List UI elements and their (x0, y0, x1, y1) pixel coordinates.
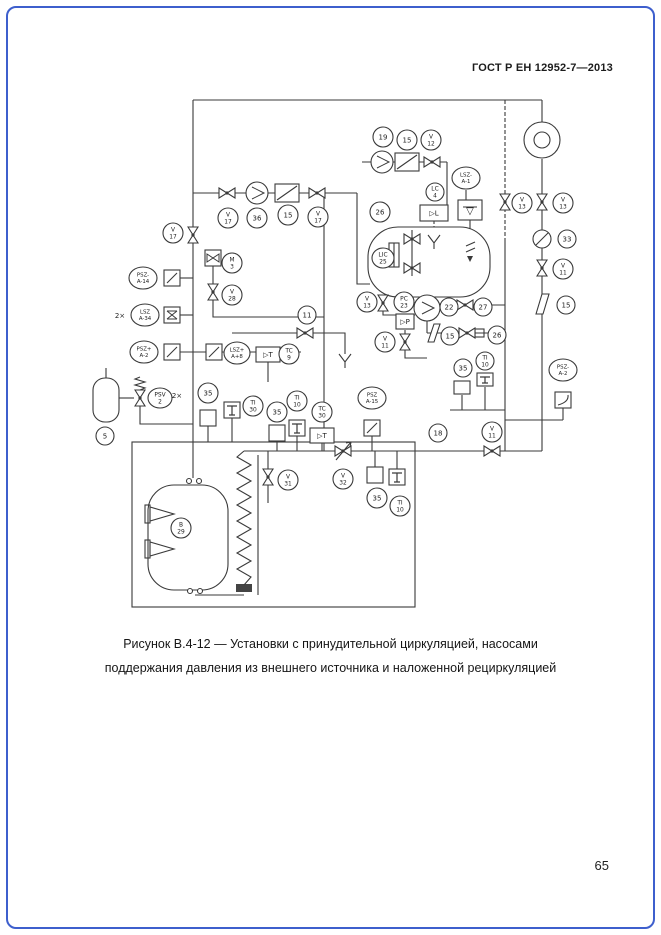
instrument-box: ▷P (396, 314, 414, 329)
pipe-segment (375, 451, 397, 469)
instrument-box (164, 344, 180, 360)
valve-symbol (537, 194, 547, 210)
svg-text:▷T: ▷T (317, 432, 327, 440)
drum-nozzle (187, 479, 192, 484)
instrument-box (389, 469, 405, 485)
instrument-box (200, 410, 216, 426)
instrument-bubble: 5 (96, 427, 114, 445)
pump-symbol (414, 295, 440, 321)
piping-diagram: ▷L▽▷P▷T▷T V17V173615V17M3V28PSZ-A-14LSZA… (0, 0, 661, 935)
check-valve-symbol (533, 230, 551, 248)
valve-symbol (484, 446, 500, 456)
instrument-tag: 33 (563, 236, 572, 244)
instrument-tag: LSZ+A+8 (230, 348, 245, 360)
instrument-bubble: PSZ-A-2 (549, 359, 577, 381)
instrument-bubble: LSZ+A+8 (224, 342, 250, 364)
instrument-bubble: 36 (247, 208, 267, 228)
instrument-bubble: 15 (557, 296, 575, 314)
instrument-bubble: M3 (222, 253, 242, 273)
instrument-bubble: V12 (421, 130, 441, 150)
instrument-tag: 15 (562, 302, 571, 310)
instrument-bubble: PC23 (394, 292, 414, 312)
valve-symbol (208, 284, 218, 300)
pump-symbol (246, 182, 268, 204)
page-number: 65 (595, 858, 609, 873)
valve-symbol (263, 469, 273, 485)
instrument-bubble: 11 (298, 306, 316, 324)
instrument-box (164, 307, 180, 323)
instrument-bubble: PSZA-15 (358, 387, 386, 409)
instrument-bubble: PSZ-A-14 (129, 267, 157, 289)
instrument-box: ▷L (420, 205, 448, 221)
instrument-tag: 26 (376, 209, 385, 217)
instrument-tag: PC23 (400, 297, 408, 310)
svg-text:▽: ▽ (466, 206, 474, 217)
instrument-bubble: 15 (397, 130, 417, 150)
instrument-bubble: 26 (370, 202, 390, 222)
instrument-box (269, 425, 285, 441)
drum-nozzle (197, 479, 202, 484)
instrument-bubble: 33 (558, 230, 576, 248)
instrument-box (454, 381, 470, 394)
valve-symbol (537, 260, 547, 276)
valve-symbol (457, 300, 473, 310)
instrument-bubble: V28 (222, 285, 242, 305)
coil-heater-block (236, 584, 252, 592)
instrument-bubble: TC9 (279, 344, 299, 364)
instrument-box (205, 250, 221, 266)
instrument-tag: 15 (403, 137, 412, 145)
valve-symbol (297, 328, 313, 338)
instrument-bubble: 35 (198, 383, 218, 403)
superheater-coil (237, 451, 251, 585)
drain-funnel-icon (339, 354, 351, 368)
instrument-tag: 18 (434, 430, 443, 438)
figure-caption-line2: поддержания давления из внешнего источни… (0, 656, 661, 680)
instrument-tag: 35 (204, 390, 213, 398)
annotation-text: 2× (172, 392, 182, 400)
instrument-tag: 35 (373, 495, 382, 503)
instrument-tag: 15 (446, 333, 455, 341)
instrument-bubble: TI10 (390, 496, 410, 516)
instrument-bubble: 35 (267, 402, 287, 422)
instrument-bubble: 35 (367, 488, 387, 508)
instrument-bubble: TI10 (476, 352, 494, 370)
instrument-tag: 35 (273, 409, 282, 417)
drum-nozzle (188, 589, 193, 594)
valve-symbol (400, 334, 410, 350)
instrument-bubble: 26 (488, 326, 506, 344)
stack-symbol-inner (534, 132, 550, 148)
instrument-bubble: V13 (512, 193, 532, 213)
valve-symbol (500, 194, 510, 210)
instrument-tag: 27 (479, 304, 488, 312)
figure-caption-line1: Рисунок В.4-12 — Установки с принудитель… (0, 632, 661, 656)
instrument-bubble: V11 (482, 422, 502, 442)
document-page: ГОСТ Р ЕН 12952-7—2013 (0, 0, 661, 935)
instrument-tag: LSZ-A-1 (460, 173, 472, 185)
valve-symbol (378, 295, 388, 311)
svg-text:▷P: ▷P (400, 318, 410, 326)
instrument-bubble: V31 (278, 470, 298, 490)
instrument-box: ▽ (458, 200, 482, 220)
instrument-bubble: B29 (171, 518, 191, 538)
instrument-tag: M3 (229, 258, 234, 271)
instrument-box (555, 392, 571, 408)
instrument-bubble: PSZ+A-2 (130, 341, 158, 363)
instrument-box (364, 420, 380, 436)
annotation-text: 2× (115, 312, 125, 320)
instrument-bubble: 15 (441, 327, 459, 345)
pipe-segment (505, 408, 563, 420)
valve-symbol (188, 227, 198, 243)
instrument-bubble: 27 (474, 298, 492, 316)
instrument-bubble: PSV2 (148, 388, 172, 408)
instrument-bubble: TC30 (312, 402, 332, 422)
instrument-bubble: TI30 (243, 396, 263, 416)
instrument-tag: 36 (253, 215, 262, 223)
valve-symbol (219, 188, 235, 198)
instrument-tag: LSZA-34 (139, 310, 152, 322)
instrument-box (164, 270, 180, 286)
instrument-bubble: TI10 (287, 391, 307, 411)
instrument-box (206, 344, 222, 360)
instrument-tag: 26 (493, 332, 502, 340)
figure-caption: Рисунок В.4-12 — Установки с принудитель… (0, 632, 661, 680)
instrument-bubble: 22 (440, 298, 458, 316)
instrument-box (289, 420, 305, 436)
instrument-tag: PSZ-A-14 (137, 273, 150, 285)
valve-symbol (459, 328, 475, 338)
instrument-bubble: V13 (357, 292, 377, 312)
instrument-box (224, 402, 240, 418)
instrument-box (367, 467, 383, 483)
instrument-bubble: LIC25 (372, 248, 394, 268)
instrument-bubble: 35 (454, 359, 472, 377)
instrument-tag: 11 (303, 312, 312, 320)
orifice-symbol (536, 294, 549, 314)
instrument-box: ▷T (256, 347, 280, 362)
svg-text:▷T: ▷T (263, 351, 273, 359)
drum-nozzle (198, 589, 203, 594)
instrument-tag: TC30 (317, 407, 326, 420)
instrument-bubble: 15 (278, 205, 298, 225)
pump-symbol (371, 151, 393, 173)
instrument-bubble: V32 (333, 469, 353, 489)
valve-symbol (424, 157, 440, 167)
valve-symbol (135, 390, 145, 406)
svg-text:▷L: ▷L (429, 210, 438, 218)
instrument-bubble: V11 (553, 259, 573, 279)
instrument-bubble: 19 (373, 127, 393, 147)
instrument-bubble: V17 (308, 207, 328, 227)
instrument-box (477, 373, 493, 386)
instrument-bubble: V17 (218, 208, 238, 228)
instrument-bubble: V17 (163, 223, 183, 243)
instrument-bubble: LC4 (426, 183, 444, 201)
instrument-bubble: 18 (429, 424, 447, 442)
instrument-tag: PSZA-15 (366, 393, 378, 405)
instrument-bubble: V13 (553, 193, 573, 213)
instrument-tag: LIC25 (378, 253, 387, 266)
instrument-bubble: LSZ-A-1 (452, 167, 480, 189)
instrument-tag: 22 (445, 304, 454, 312)
instrument-bubble: V11 (375, 332, 395, 352)
safety-valve-spring-icon (135, 377, 145, 390)
valve-symbol (309, 188, 325, 198)
expansion-vessel (93, 378, 119, 422)
instrument-tag: PSZ-A-2 (557, 365, 569, 377)
instrument-tag: 15 (284, 212, 293, 220)
boiler-vessel (148, 485, 228, 590)
instrument-box: ▷T (310, 428, 334, 443)
instrument-tag: 19 (379, 134, 388, 142)
instrument-tag: 35 (459, 365, 468, 373)
instrument-tag: 5 (103, 433, 107, 441)
instrument-bubble: LSZA-34 (131, 304, 159, 326)
